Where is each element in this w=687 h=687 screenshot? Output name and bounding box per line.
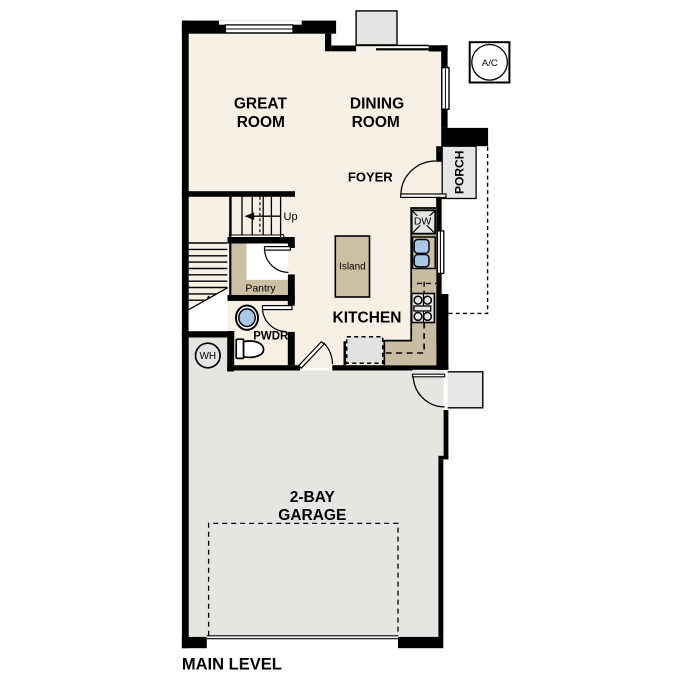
svg-text:KITCHEN: KITCHEN xyxy=(333,309,402,326)
svg-text:A/C: A/C xyxy=(482,58,498,69)
svg-text:MAIN LEVEL: MAIN LEVEL xyxy=(182,655,282,673)
svg-text:FOYER: FOYER xyxy=(348,170,393,185)
svg-text:GREAT: GREAT xyxy=(234,96,288,113)
svg-text:2-BAY: 2-BAY xyxy=(290,489,336,506)
svg-text:Pantry: Pantry xyxy=(245,283,276,295)
svg-text:Island: Island xyxy=(339,262,366,273)
svg-text:ROOM: ROOM xyxy=(237,114,285,131)
svg-text:DW: DW xyxy=(414,215,432,227)
svg-text:Up: Up xyxy=(284,211,298,223)
svg-text:PORCH: PORCH xyxy=(453,151,467,194)
svg-text:WH: WH xyxy=(199,351,216,362)
svg-text:GARAGE: GARAGE xyxy=(278,507,346,524)
svg-text:DINING: DINING xyxy=(350,96,404,113)
svg-text:ROOM: ROOM xyxy=(352,114,400,131)
svg-text:PWDR: PWDR xyxy=(253,330,289,342)
